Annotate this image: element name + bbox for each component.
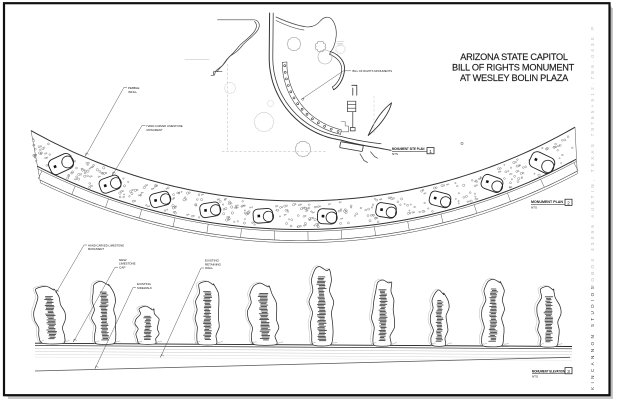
svg-text:POBOX 43096 AUSTIN, TEXAS 7876: POBOX 43096 AUSTIN, TEXAS 78765+512.789.… [590,24,595,288]
svg-text:MONUMENT ELEVATION: MONUMENT ELEVATION [532,369,565,373]
svg-text:MONUMENT: MONUMENT [88,247,104,251]
svg-text:3: 3 [567,369,570,374]
svg-text:MONUMENT: MONUMENT [147,128,163,132]
svg-text:INFILL: INFILL [128,90,137,94]
svg-text:NTS: NTS [531,205,537,209]
svg-text:NTS: NTS [392,152,398,156]
svg-text:2: 2 [567,200,570,205]
svg-text:NTS: NTS [532,375,538,379]
svg-text:BILL OF RIGHTS MONUMENT: BILL OF RIGHTS MONUMENT [452,62,575,72]
svg-text:MONUMENT SITE PLAN: MONUMENT SITE PLAN [392,147,425,151]
svg-text:SIDEWALK: SIDEWALK [137,286,153,290]
svg-text:CAP: CAP [119,265,126,269]
svg-text:ARIZONA STATE CAPITOL: ARIZONA STATE CAPITOL [460,52,568,62]
svg-text:1: 1 [429,149,432,154]
svg-text:AT WESLEY BOLIN PLAZA: AT WESLEY BOLIN PLAZA [460,73,569,83]
svg-text:WALL: WALL [205,266,213,270]
svg-text:MONUMENT PLAN: MONUMENT PLAN [531,200,563,204]
svg-text:BILL OF RIGHTS MONUMENTS: BILL OF RIGHTS MONUMENTS [353,69,393,73]
svg-text:KINCANNON STUDIOS: KINCANNON STUDIOS [590,283,595,390]
